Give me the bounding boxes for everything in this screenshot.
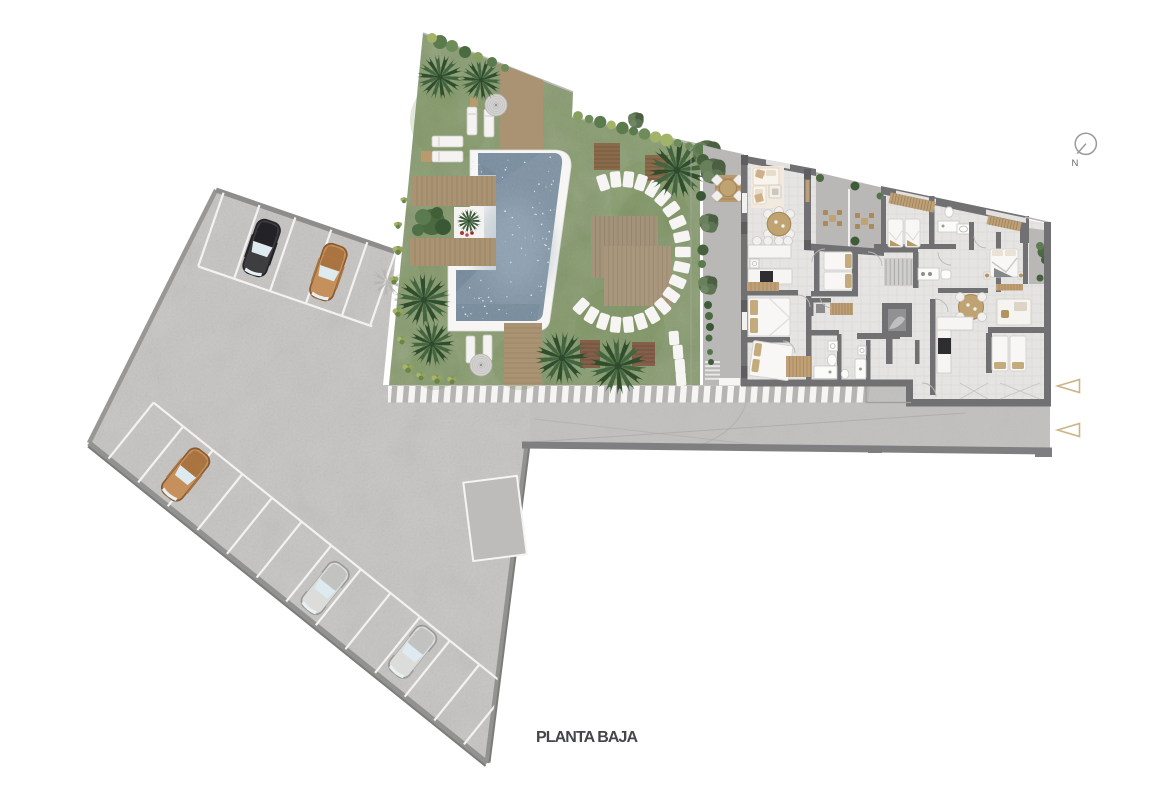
svg-text:N: N <box>1072 158 1079 169</box>
svg-text:PLANTA BAJA: PLANTA BAJA <box>536 729 639 746</box>
